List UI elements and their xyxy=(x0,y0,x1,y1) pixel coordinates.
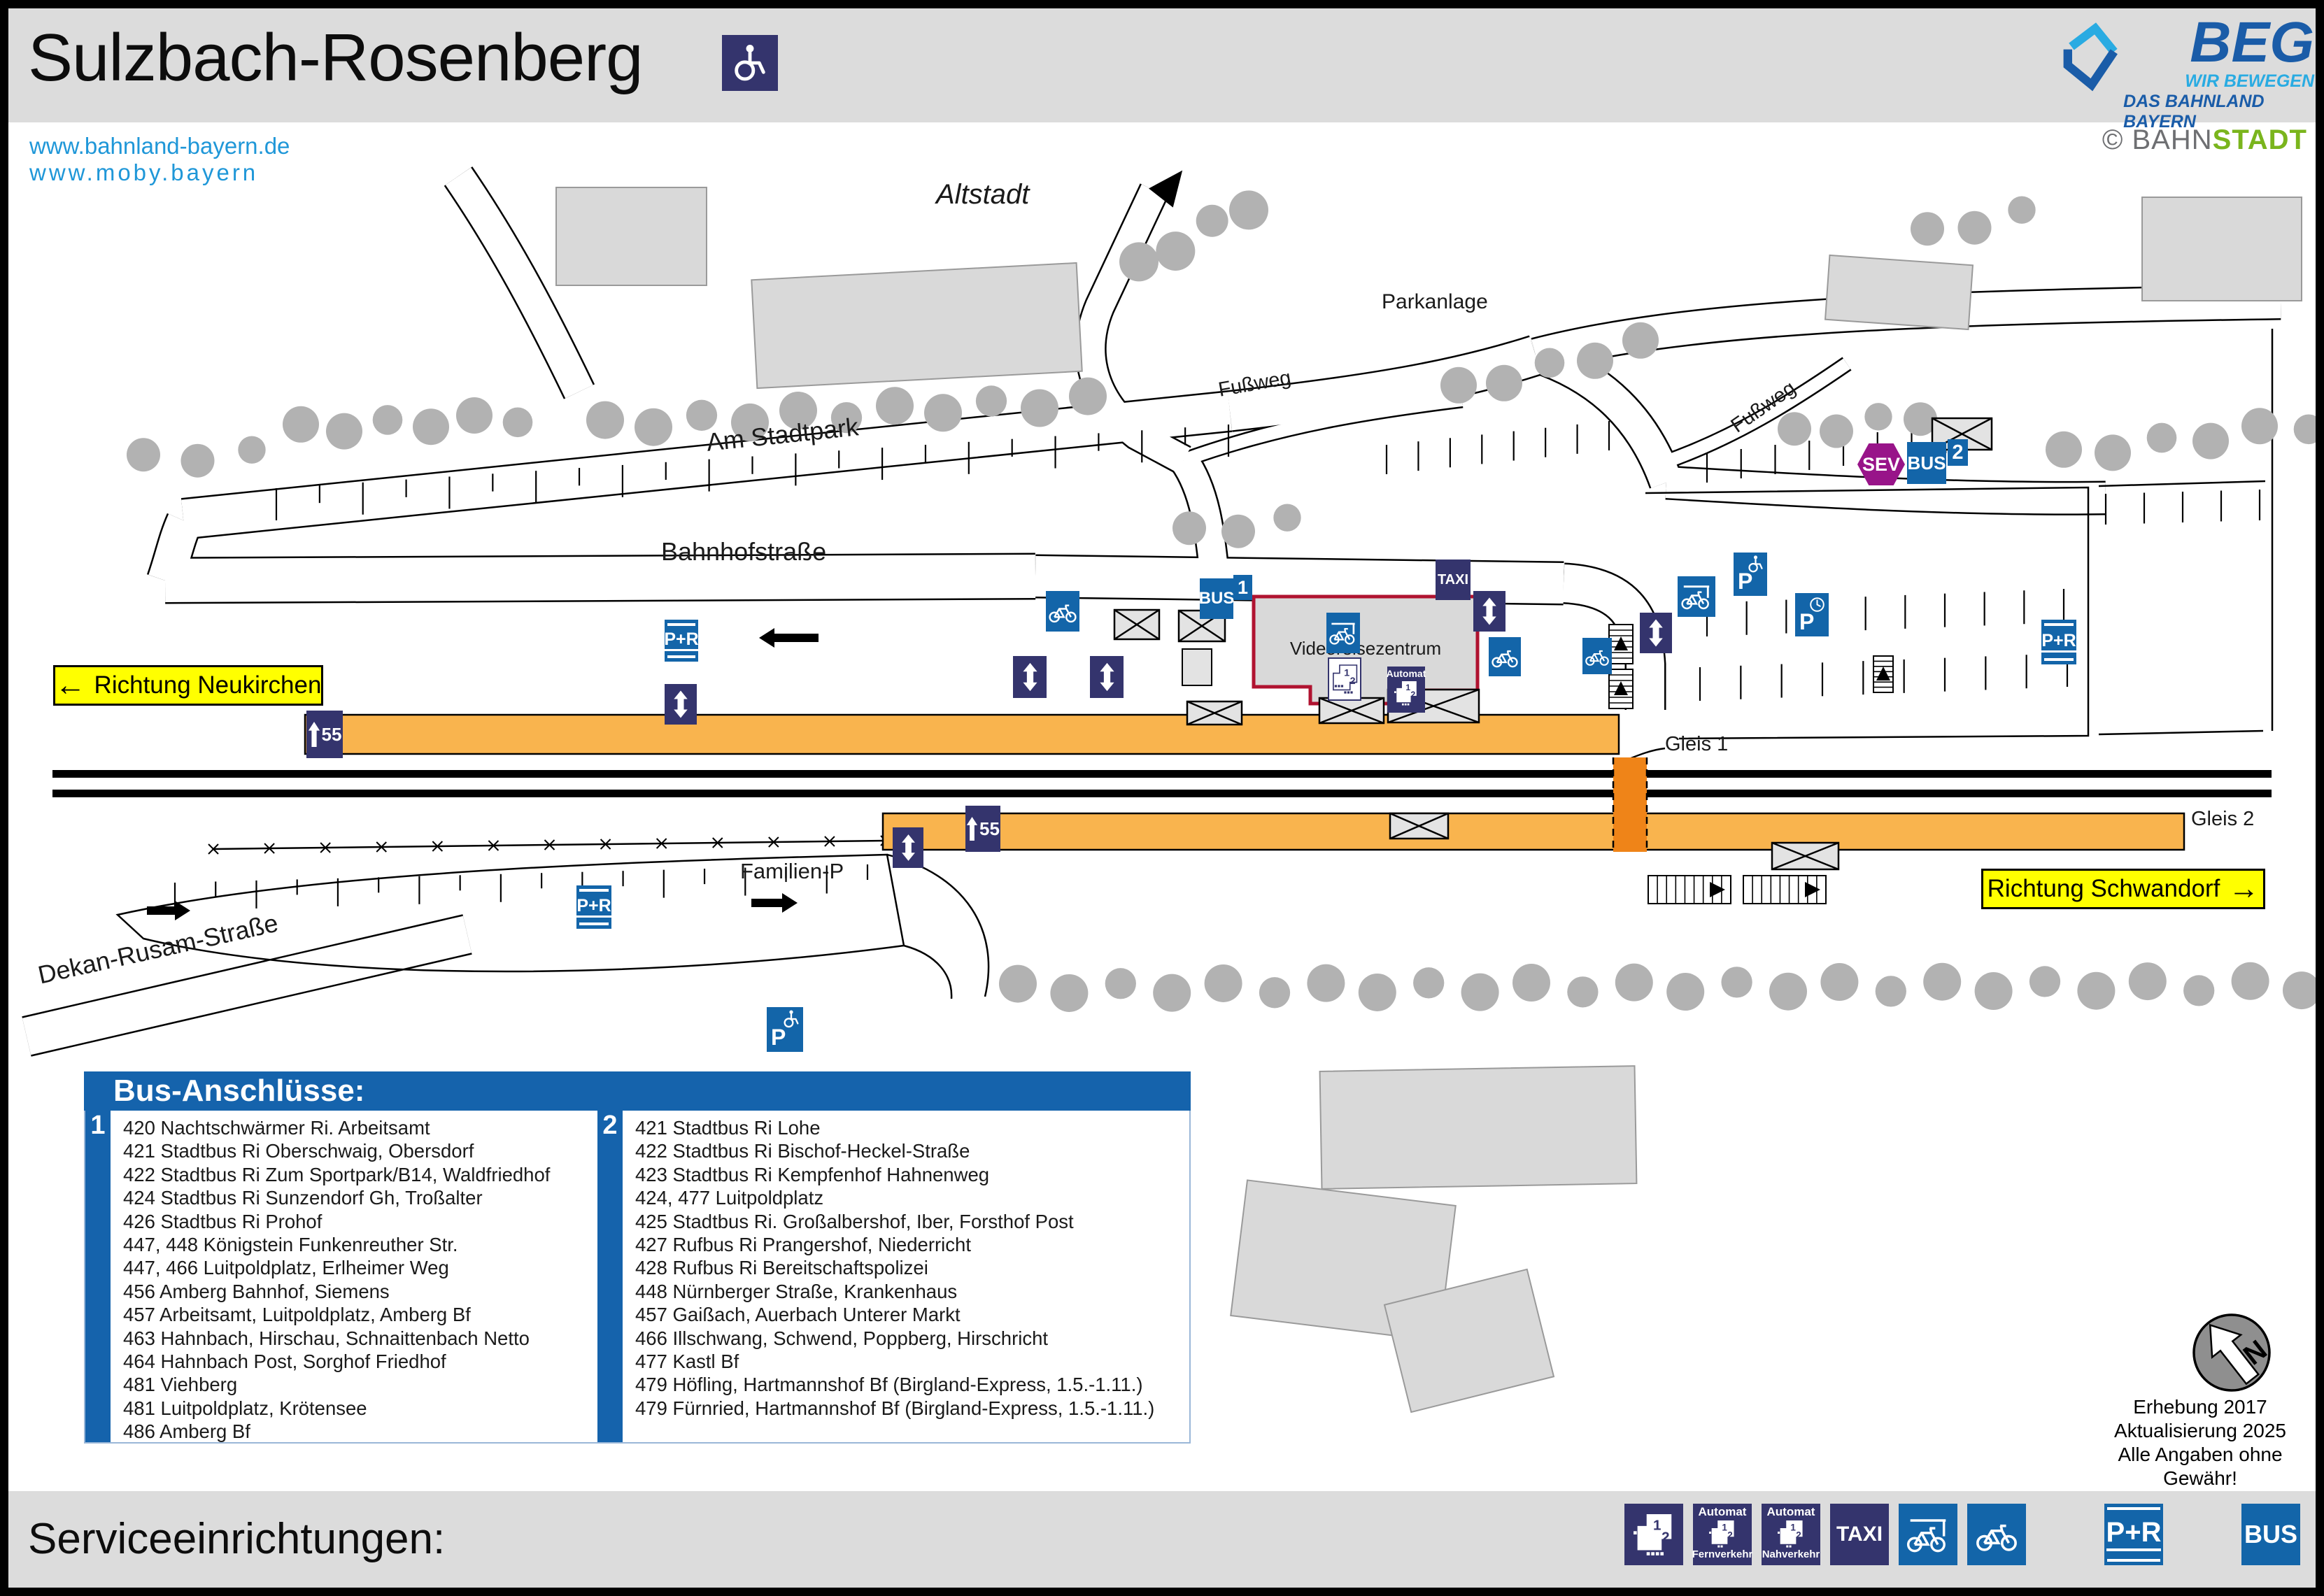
svg-text:2: 2 xyxy=(1350,676,1356,687)
direction-label-altstadt: Altstadt xyxy=(936,179,1029,211)
wheelchair-icon xyxy=(1746,555,1765,573)
park-and-ride-sign-east: P+R xyxy=(2041,620,2076,664)
map-notes: Erhebung 2017 Aktualisierung 2025 Alle A… xyxy=(2085,1395,2316,1490)
north-compass-icon: N xyxy=(2190,1311,2274,1395)
services-title: Serviceeinrichtungen: xyxy=(28,1514,445,1564)
bus-route: 481 Luitpoldplatz, Krötensee xyxy=(123,1397,550,1420)
legend-bus-icon: BUS xyxy=(2241,1504,2300,1565)
svg-text:2: 2 xyxy=(1796,1530,1801,1541)
park-and-ride-sign-south: P+R xyxy=(576,885,611,929)
ramp-icon xyxy=(1645,618,1666,648)
bus-stop-1-sign: BUS xyxy=(1200,578,1233,619)
bus-route: 486 Amberg Bf xyxy=(123,1420,550,1443)
track-label-gleis-1: Gleis 1 xyxy=(1665,733,1728,756)
bus-label: BUS xyxy=(1199,589,1235,608)
covered-bike-icon xyxy=(1680,580,1713,613)
bus-route: 423 Stadtbus Ri Kempfenhof Hahnenweg xyxy=(635,1163,1154,1186)
ramp-sign-platform1-west xyxy=(665,684,697,725)
park-and-ride-sign-bahnhofstrasse: P+R xyxy=(665,620,698,662)
note-survey: Erhebung 2017 xyxy=(2085,1395,2316,1419)
direction-sign-neukirchen: ← Richtung Neukirchen xyxy=(53,665,323,706)
bus-route: 456 Amberg Bahnhof, Siemens xyxy=(123,1280,550,1303)
station-accessible-icon xyxy=(722,35,778,91)
area-label-parkanlage: Parkanlage xyxy=(1382,290,1488,314)
bus-route: 424 Stadtbus Ri Sunzendorf Gh, Troßalter xyxy=(123,1186,550,1209)
taxi-sign: TAXI xyxy=(1436,560,1471,600)
direction-sign-schwandorf: Richtung Schwandorf → xyxy=(1981,869,2265,909)
wheelchair-icon xyxy=(781,1009,801,1029)
ramp-sign-forecourt-2 xyxy=(1090,656,1124,698)
bus-route: 426 Stadtbus Ri Prohof xyxy=(123,1210,550,1233)
platform-steps-icon: 1 2 xyxy=(1778,1519,1804,1548)
automat-label: Automat xyxy=(1387,668,1426,679)
bus-stop-1-column-badge: 1 xyxy=(85,1111,111,1442)
platform-height-sign-2: 55 xyxy=(965,806,1000,852)
bike-icon xyxy=(1585,643,1610,669)
direction-label: Richtung Neukirchen xyxy=(94,671,322,699)
direction-label: Richtung Schwandorf xyxy=(1988,875,2220,903)
platform-steps-icon: 1 2 xyxy=(1709,1519,1736,1548)
bus-stop-2-column-badge: 2 xyxy=(597,1111,623,1442)
bus-routes-stop-2: 421 Stadtbus Ri Lohe 422 Stadtbus Ri Bis… xyxy=(635,1116,1154,1420)
bus-stop-2-badge: 2 xyxy=(1948,439,1968,466)
ramp-sign-east-lot xyxy=(1640,613,1672,653)
bus-route: 447, 448 Königstein Funkenreuther Str. xyxy=(123,1233,550,1256)
bus-route: 428 Rufbus Ri Bereitschaftspolizei xyxy=(635,1256,1154,1279)
station-map-page: Sulzbach-Rosenberg BEG WIR BEWEGEN DAS B… xyxy=(0,0,2324,1596)
platform-steps-icon: 1 2 xyxy=(1331,661,1359,697)
legend-ticket-machine-longdistance-icon: Automat 1 2 Fernverkehr xyxy=(1693,1504,1752,1565)
sev-label: SEV xyxy=(1862,454,1900,476)
ramp-icon xyxy=(1096,661,1118,693)
bus-stop-2-sign: BUS xyxy=(1907,442,1946,484)
bus-route: 481 Viehberg xyxy=(123,1373,550,1396)
covered-bike-parking-sign-east xyxy=(1678,576,1715,617)
up-arrow-icon xyxy=(308,720,320,749)
bus-route: 457 Arbeitsamt, Luitpoldplatz, Amberg Bf xyxy=(123,1303,550,1326)
covered-bike-icon xyxy=(1328,618,1358,648)
svg-text:1: 1 xyxy=(1722,1523,1727,1533)
bus-route: 422 Stadtbus Ri Zum Sportpark/B14, Waldf… xyxy=(123,1163,550,1186)
bus-route: 421 Stadtbus Ri Oberschwaig, Obersdorf xyxy=(123,1139,550,1162)
short-term-parking-sign-east: P xyxy=(1795,593,1829,636)
bus-route: 448 Nürnberger Straße, Krankenhaus xyxy=(635,1280,1154,1303)
ramp-sign-platform2 xyxy=(893,827,923,868)
ramp-icon xyxy=(1479,596,1500,627)
note-disclaimer: Alle Angaben ohne Gewähr! xyxy=(2085,1443,2316,1490)
bike-icon xyxy=(1975,1513,2018,1556)
svg-text:2: 2 xyxy=(1727,1530,1733,1541)
bus-route: 463 Hahnbach, Hirschau, Schnaittenbach N… xyxy=(123,1327,550,1350)
svg-text:1: 1 xyxy=(1790,1523,1796,1533)
bus-route: 424, 477 Luitpoldplatz xyxy=(635,1186,1154,1209)
up-arrow-icon xyxy=(966,815,978,843)
platform-access-sign: 1 2 xyxy=(1328,657,1361,701)
bus-route: 464 Hahnbach Post, Sorghof Friedhof xyxy=(123,1350,550,1373)
ramp-icon xyxy=(1019,661,1041,693)
svg-text:2: 2 xyxy=(1411,690,1416,699)
bus-route: 427 Rufbus Ri Prangershof, Niederricht xyxy=(635,1233,1154,1256)
bus-route: 420 Nachtschwärmer Ri. Arbeitsamt xyxy=(123,1116,550,1139)
bus-connections-box: Bus-Anschlüsse: 1 2 420 Nachtschwärmer R… xyxy=(84,1071,1191,1444)
covered-bike-parking-sign-station xyxy=(1326,613,1360,653)
taxi-label: TAXI xyxy=(1438,572,1468,588)
legend-ticket-machine-local-icon: Automat 1 2 Nahverkehr xyxy=(1762,1504,1820,1565)
platform-steps-icon: 1 2 xyxy=(1394,679,1418,707)
svg-text:2: 2 xyxy=(1661,1529,1669,1545)
accessible-parking-sign-east: P xyxy=(1734,553,1767,596)
bus-label: BUS xyxy=(1908,453,1946,474)
area-label-familien-p: Familien-P xyxy=(740,859,844,884)
legend-bike-parking-icon xyxy=(1967,1504,2026,1565)
accessible-parking-sign-south: P xyxy=(767,1007,803,1052)
legend-platform-access-icon: 1 2 xyxy=(1624,1504,1683,1565)
svg-text:1: 1 xyxy=(1405,683,1410,692)
bus-route: 479 Fürnried, Hartmannshof Bf (Birgland-… xyxy=(635,1397,1154,1420)
bus-route: 479 Höfling, Hartmannshof Bf (Birgland-E… xyxy=(635,1373,1154,1396)
ticket-machine-sign: Automat 1 2 xyxy=(1387,667,1425,713)
bus-route: 477 Kastl Bf xyxy=(635,1350,1154,1373)
ramp-sign-station-east xyxy=(1473,591,1505,632)
platform-height-sign-1: 55 xyxy=(306,711,343,758)
platform-steps-icon: 1 2 xyxy=(1634,1513,1674,1556)
bus-connections-title: Bus-Anschlüsse: xyxy=(84,1071,1191,1111)
bike-parking-sign-station-east xyxy=(1489,637,1521,676)
legend-taxi-icon: TAXI xyxy=(1830,1504,1889,1565)
clock-icon xyxy=(1808,595,1827,614)
bus-route: 422 Stadtbus Ri Bischof-Heckel-Straße xyxy=(635,1139,1154,1162)
ramp-icon xyxy=(670,689,691,720)
legend-park-and-ride-icon: P+R xyxy=(2104,1504,2163,1565)
bike-parking-sign-forecourt xyxy=(1046,591,1079,632)
bus-route: 421 Stadtbus Ri Lohe xyxy=(635,1116,1154,1139)
note-update: Aktualisierung 2025 xyxy=(2085,1419,2316,1443)
bus-route: 425 Stadtbus Ri. Großalbershof, Iber, Fo… xyxy=(635,1210,1154,1233)
bus-route: 447, 466 Luitpoldplatz, Erlheimer Weg xyxy=(123,1256,550,1279)
building-label-videoreisezentrum: Videoreisezentrum xyxy=(1254,638,1478,660)
svg-text:1: 1 xyxy=(1653,1517,1661,1533)
bike-icon xyxy=(1048,597,1077,626)
bus-route: 466 Illschwang, Schwend, Poppberg, Hirsc… xyxy=(635,1327,1154,1350)
ramp-icon xyxy=(898,832,919,863)
legend-covered-bike-parking-icon xyxy=(1899,1504,1957,1565)
track-label-gleis-2: Gleis 2 xyxy=(2191,808,2254,831)
bike-parking-sign-east-small xyxy=(1582,638,1612,674)
covered-bike-icon xyxy=(1906,1512,1950,1557)
bike-icon xyxy=(1491,643,1519,671)
bus-route: 457 Gaißach, Auerbach Unterer Markt xyxy=(635,1303,1154,1326)
ramp-sign-forecourt-1 xyxy=(1013,656,1047,698)
wheelchair-icon xyxy=(730,43,770,83)
bus-routes-stop-1: 420 Nachtschwärmer Ri. Arbeitsamt 421 St… xyxy=(123,1116,550,1444)
bus-stop-1-badge: 1 xyxy=(1233,575,1252,600)
street-label-bahnhofstrasse: Bahnhofstraße xyxy=(661,537,826,567)
svg-text:1: 1 xyxy=(1344,667,1349,678)
